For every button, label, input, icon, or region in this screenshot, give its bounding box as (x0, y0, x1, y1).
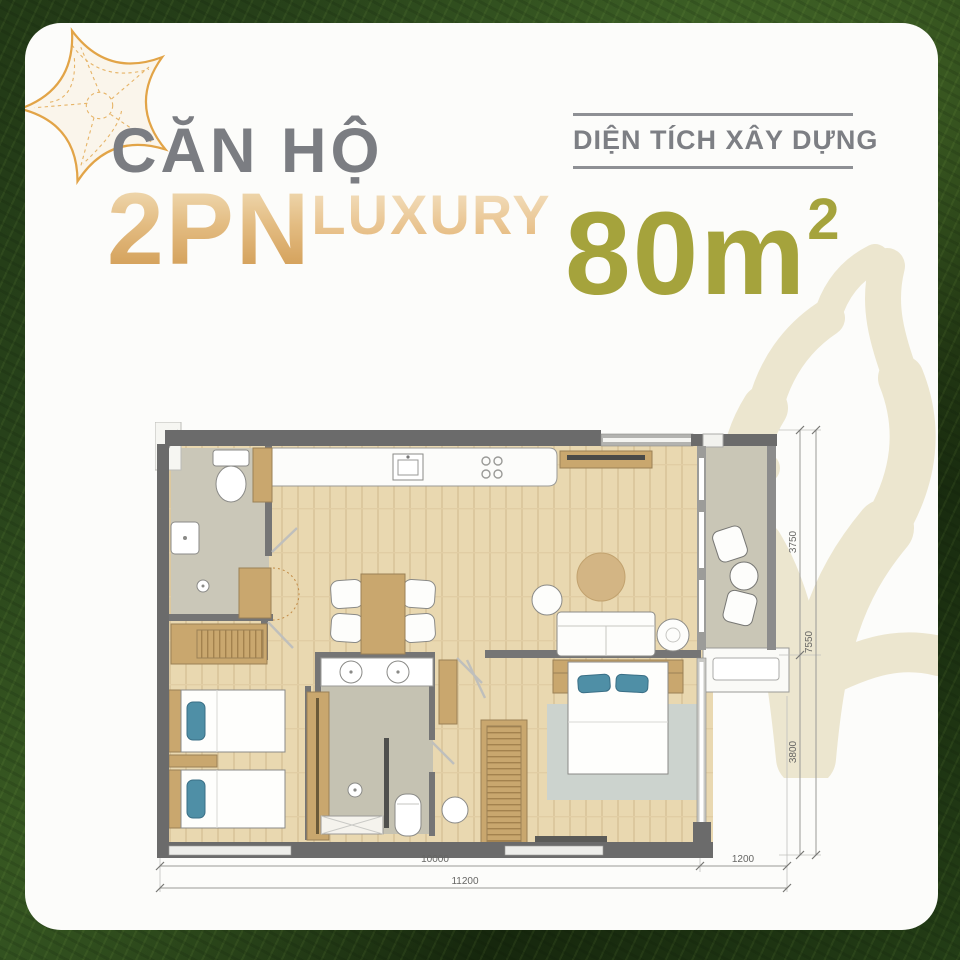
dim-bottom-main: 10000 (421, 854, 449, 865)
window (505, 846, 603, 855)
tv-icon (567, 455, 645, 460)
pillow (616, 674, 649, 693)
kitchen-counter (269, 448, 557, 486)
nightstand (553, 673, 568, 693)
unit-type: 2PN (107, 181, 311, 278)
coffee-table (657, 619, 689, 651)
pillow (577, 674, 610, 693)
single-bed-2 (169, 770, 285, 828)
area-value: 80m2 (565, 191, 839, 313)
cabinet (239, 568, 271, 618)
dining-table (361, 574, 405, 654)
living-rug (577, 553, 625, 601)
rule-bottom (573, 166, 853, 169)
pillow (187, 702, 205, 740)
nightstand (668, 673, 683, 693)
unit-tier: LUXURY (311, 187, 551, 243)
area-label: DIỆN TÍCH XÂY DỰNG (573, 116, 853, 166)
dim-right-total: 7550 (804, 630, 815, 653)
sofa (557, 612, 655, 656)
single-bed-1 (169, 690, 285, 752)
window (169, 846, 291, 855)
double-vanity (321, 658, 433, 686)
pillow (187, 780, 205, 818)
dim-bottom-total: 11200 (451, 876, 479, 887)
balcony-table (730, 562, 758, 590)
poster: { "header": { "title": "CĂN HỘ", "unit":… (0, 0, 960, 960)
cabinet (253, 448, 272, 502)
dim-right-bottom: 3800 (788, 740, 799, 763)
area-sup: 2 (807, 187, 839, 252)
nightstand (169, 755, 217, 767)
ac-ledge (703, 648, 789, 692)
pouf (442, 797, 468, 823)
unit-type-row: 2PN LUXURY (107, 181, 552, 278)
floor-plan-svg: 3750 3800 7550 10000 1200 11200 (155, 422, 835, 900)
dim-bottom-side: 1200 (732, 854, 755, 865)
dim-right-top: 3750 (788, 530, 799, 553)
area-label-block: DIỆN TÍCH XÂY DỰNG (573, 113, 853, 169)
floor-plan: 3750 3800 7550 10000 1200 11200 (155, 422, 835, 900)
balcony-door (703, 434, 723, 447)
white-card: CĂN HỘ 2PN LUXURY DIỆN TÍCH XÂY DỰNG 80m… (25, 23, 938, 930)
toilet (395, 794, 421, 836)
toilet (213, 450, 249, 466)
side-table (532, 585, 562, 615)
closet (439, 660, 457, 724)
